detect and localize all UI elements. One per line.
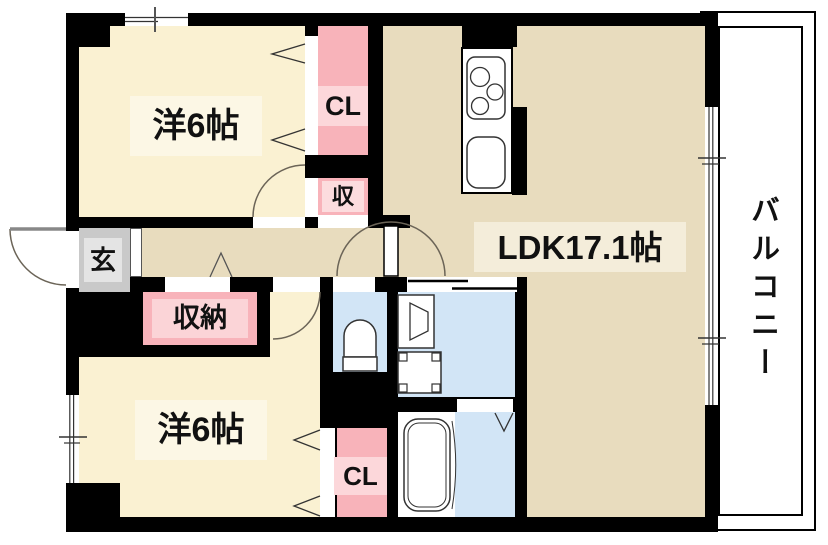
wall-right-upper: [705, 13, 718, 107]
wall-sanitary-mid: [387, 292, 398, 517]
closet1-folding-door: [305, 36, 318, 155]
wall-closet2-north: [320, 410, 387, 428]
entrance-door-swing-icon: [10, 229, 66, 285]
window-balcony: [705, 107, 718, 405]
bedroom2-label: 洋6帖: [135, 400, 267, 460]
wall-storage-south: [143, 345, 270, 357]
window-left: [66, 395, 79, 483]
storage-small-opening: [318, 215, 368, 228]
closet1-label: CL: [318, 86, 368, 126]
bedroom1-label: 洋6帖: [130, 96, 262, 156]
wall-block: [66, 292, 143, 357]
hallway-floor: [142, 228, 390, 277]
toilet-door-opening: [333, 277, 375, 292]
wall-stub: [383, 215, 410, 228]
wall-left-lower: [66, 483, 79, 531]
storage-opening: [165, 277, 230, 292]
storage-small-label: 収: [322, 181, 364, 212]
kitchen-end-panel: [512, 107, 527, 195]
bathroom-floor: [455, 412, 515, 517]
wall-bedroom1-south: [66, 217, 253, 228]
balcony-label: バルコニー: [740, 140, 784, 440]
wall-closet-divider: [368, 13, 383, 228]
wall-stub: [305, 217, 318, 228]
bath-door-opening: [457, 399, 513, 412]
entrance-label: 玄: [84, 238, 122, 282]
storage-label: 収納: [152, 299, 248, 338]
washroom-floor: [398, 292, 515, 397]
wall-sanitary-east: [515, 277, 527, 517]
toilet-room-floor: [333, 292, 387, 372]
bathtub-zone: [398, 412, 455, 517]
wall-storage-east: [257, 292, 270, 345]
bedroom2-floor-upper: [270, 292, 320, 357]
closet2-folding-door: [322, 428, 333, 517]
entrance-door-opening: [66, 231, 79, 288]
floorplan: 洋6帖 洋6帖 LDK17.1帖 CL 収 収納 玄 CL バルコニー: [0, 0, 828, 545]
wall-corner-stub: [79, 26, 110, 47]
window-top: [125, 13, 188, 26]
bedroom2-door-opening: [273, 277, 320, 292]
wall-corner-stub: [79, 483, 120, 517]
wall-kitchen-stub: [462, 26, 517, 47]
bedroom1-door-opening: [253, 217, 305, 228]
wall-right-lower: [705, 405, 718, 531]
wall-left-upper: [66, 13, 79, 231]
wall-bottom: [66, 517, 718, 532]
closet2-label: CL: [334, 457, 387, 495]
wall-closet-storage-divider: [305, 155, 368, 178]
ldk-label: LDK17.1帖: [474, 222, 686, 272]
entrance-step: [130, 228, 142, 277]
washroom-sliding-opening: [407, 277, 517, 292]
wall-bedroom2-east: [320, 292, 333, 428]
